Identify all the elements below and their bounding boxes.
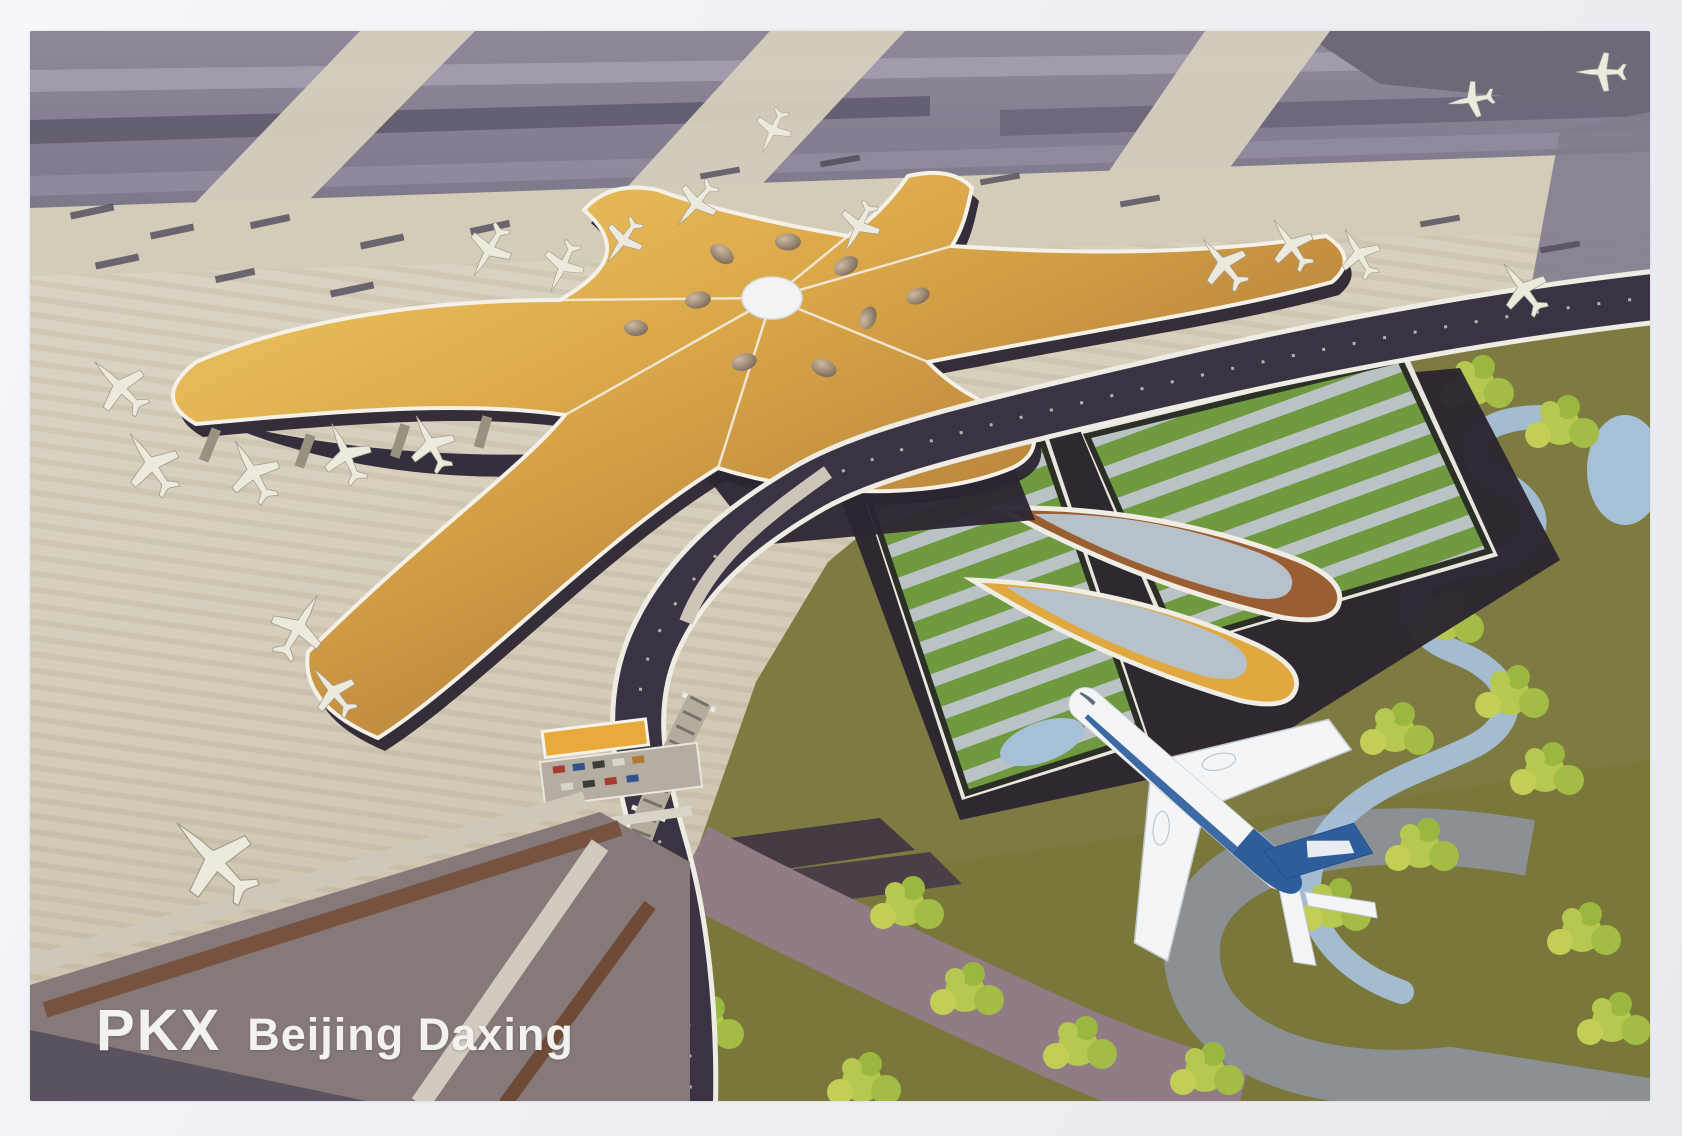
- postcard: PKX Beijing Daxing: [0, 0, 1682, 1136]
- photo-caption: PKX Beijing Daxing: [96, 997, 574, 1064]
- airport-illustration: [30, 31, 1650, 1101]
- airport-photo: PKX Beijing Daxing: [30, 31, 1650, 1101]
- central-skylight: [742, 277, 802, 319]
- airport-code: PKX: [96, 997, 221, 1064]
- airport-name: Beijing Daxing: [247, 1009, 574, 1061]
